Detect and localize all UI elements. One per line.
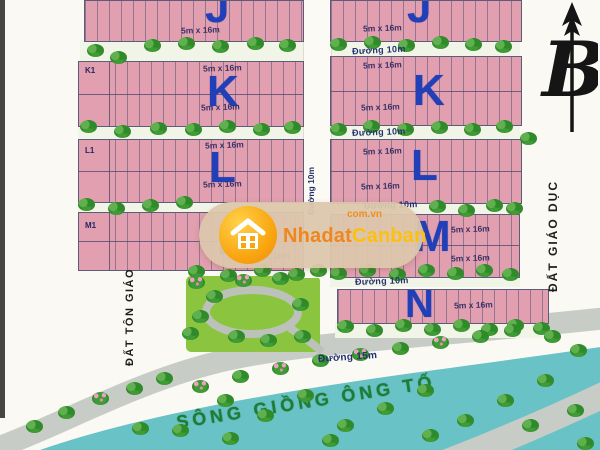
plot-size-label: 5m x 16m xyxy=(361,101,400,112)
block-j-right: J 5m x 16m xyxy=(330,0,522,42)
block-letter: K xyxy=(413,69,445,113)
tree-icon xyxy=(432,336,449,349)
tree-icon xyxy=(58,406,75,419)
plot-number: K1 xyxy=(85,66,95,75)
tree-icon xyxy=(228,330,245,343)
tree-icon xyxy=(284,121,301,134)
block-l-left: L1 L 5m x 16m 5m x 16m xyxy=(78,139,304,203)
tree-icon xyxy=(87,44,104,57)
photo-edge-strip xyxy=(0,0,5,418)
block-l-right: L 5m x 16m 5m x 16m xyxy=(330,139,522,204)
tree-icon xyxy=(476,264,493,277)
tree-icon xyxy=(522,419,539,432)
tree-icon xyxy=(464,123,481,136)
tree-icon xyxy=(92,392,109,405)
block-letter: J xyxy=(407,0,431,30)
tree-icon xyxy=(502,268,519,281)
tree-icon xyxy=(432,36,449,49)
tree-icon xyxy=(80,120,97,133)
tree-icon xyxy=(395,319,412,332)
tree-icon xyxy=(142,199,159,212)
brand-logo xyxy=(219,206,277,264)
tree-icon xyxy=(188,276,205,289)
plot-number: L1 xyxy=(85,146,94,155)
tree-icon xyxy=(392,342,409,355)
brand-text-orange: Nhadat xyxy=(283,225,352,247)
tree-icon xyxy=(457,414,474,427)
plot-size-label: 5m x 16m xyxy=(205,139,244,150)
tree-icon xyxy=(506,202,523,215)
plot-size-label: 5m x 16m xyxy=(201,101,240,112)
tree-icon xyxy=(495,40,512,53)
tree-icon xyxy=(192,310,209,323)
tree-icon xyxy=(178,37,195,50)
tree-icon xyxy=(156,372,173,385)
tree-icon xyxy=(257,409,274,422)
area-label-religious-land: ĐẤT TÔN GIÁO xyxy=(124,246,136,366)
block-k-left: K1 K 5m x 16m 5m x 16m xyxy=(78,61,304,127)
tree-icon xyxy=(172,424,189,437)
tree-icon xyxy=(486,199,503,212)
tree-icon xyxy=(570,344,587,357)
plot-size-label: 5m x 16m xyxy=(451,223,490,234)
tree-icon xyxy=(330,123,347,136)
tree-icon xyxy=(272,272,289,285)
block-letter: N xyxy=(405,289,434,324)
tree-icon xyxy=(294,330,311,343)
tree-icon xyxy=(297,389,314,402)
tree-icon xyxy=(185,123,202,136)
tree-icon xyxy=(520,132,537,145)
plot-size-label: 5m x 16m xyxy=(363,59,402,70)
tree-icon xyxy=(431,121,448,134)
tree-icon xyxy=(465,38,482,51)
land-plot-map: J 5m x 16m J 5m x 16m K1 K 5m x 16m 5m x… xyxy=(0,0,600,450)
tree-icon xyxy=(418,264,435,277)
tree-icon xyxy=(429,200,446,213)
tree-icon xyxy=(217,394,234,407)
tree-icon xyxy=(330,267,347,280)
plot-size-label: 5m x 16m xyxy=(363,145,402,156)
watermark: NhadatCanban com.vn xyxy=(199,202,423,268)
tree-icon xyxy=(497,394,514,407)
block-j-left: J 5m x 16m xyxy=(84,0,304,42)
tree-icon xyxy=(232,370,249,383)
tree-icon xyxy=(567,404,584,417)
brand-text: NhadatCanban xyxy=(283,225,427,248)
plot-size-label: 5m x 16m xyxy=(181,24,220,35)
north-letter: B xyxy=(540,25,598,114)
plot-size-label: 5m x 16m xyxy=(451,252,490,263)
tree-icon xyxy=(192,380,209,393)
plot-size-label: 5m x 16m xyxy=(361,180,400,191)
tree-icon xyxy=(108,202,125,215)
tree-icon xyxy=(288,268,305,281)
area-label-education-land: ĐẤT GIÁO DỤC xyxy=(546,112,560,292)
tree-icon xyxy=(458,204,475,217)
tree-icon xyxy=(279,39,296,52)
tree-icon xyxy=(504,324,521,337)
brand-text-yellow: Canban xyxy=(352,225,427,247)
tree-icon xyxy=(337,320,354,333)
tree-icon xyxy=(366,324,383,337)
street-label: Đường 10m xyxy=(352,126,406,138)
house-icon xyxy=(228,216,268,254)
tree-icon xyxy=(219,120,236,133)
north-arrow-icon: B xyxy=(538,2,598,137)
block-letter: L xyxy=(411,144,438,188)
tree-icon xyxy=(132,422,149,435)
tree-icon xyxy=(417,384,434,397)
tree-icon xyxy=(182,327,199,340)
tree-icon xyxy=(292,298,309,311)
tree-icon xyxy=(144,39,161,52)
tree-icon xyxy=(377,402,394,415)
tree-icon xyxy=(330,38,347,51)
plot-size-label: 5m x 16m xyxy=(454,299,493,310)
tree-icon xyxy=(212,40,229,53)
tree-icon xyxy=(337,419,354,432)
tree-icon xyxy=(26,420,43,433)
tree-icon xyxy=(322,434,339,447)
tree-icon xyxy=(496,120,513,133)
tree-icon xyxy=(472,330,489,343)
tree-icon xyxy=(537,374,554,387)
plot-number: M1 xyxy=(85,221,96,230)
tree-icon xyxy=(453,319,470,332)
tree-icon xyxy=(247,37,264,50)
tree-icon xyxy=(150,122,167,135)
tree-icon xyxy=(114,125,131,138)
tree-icon xyxy=(577,437,594,450)
tree-icon xyxy=(544,330,561,343)
tree-icon xyxy=(447,267,464,280)
tree-icon xyxy=(126,382,143,395)
tree-icon xyxy=(253,123,270,136)
tree-icon xyxy=(260,334,277,347)
tree-icon xyxy=(110,51,127,64)
brand-domain: com.vn xyxy=(347,209,382,220)
tree-icon xyxy=(78,198,95,211)
tree-icon xyxy=(206,290,223,303)
plot-size-label: 5m x 16m xyxy=(203,62,242,73)
block-k-right: K 5m x 16m 5m x 16m xyxy=(330,56,522,126)
tree-icon xyxy=(422,429,439,442)
tree-icon xyxy=(235,274,252,287)
tree-icon xyxy=(176,196,193,209)
tree-icon xyxy=(424,323,441,336)
plot-size-label: 5m x 16m xyxy=(363,22,402,33)
tree-icon xyxy=(222,432,239,445)
plot-size-label: 5m x 16m xyxy=(203,178,242,189)
street-label: Đường 10m xyxy=(355,275,409,287)
tree-icon xyxy=(272,362,289,375)
